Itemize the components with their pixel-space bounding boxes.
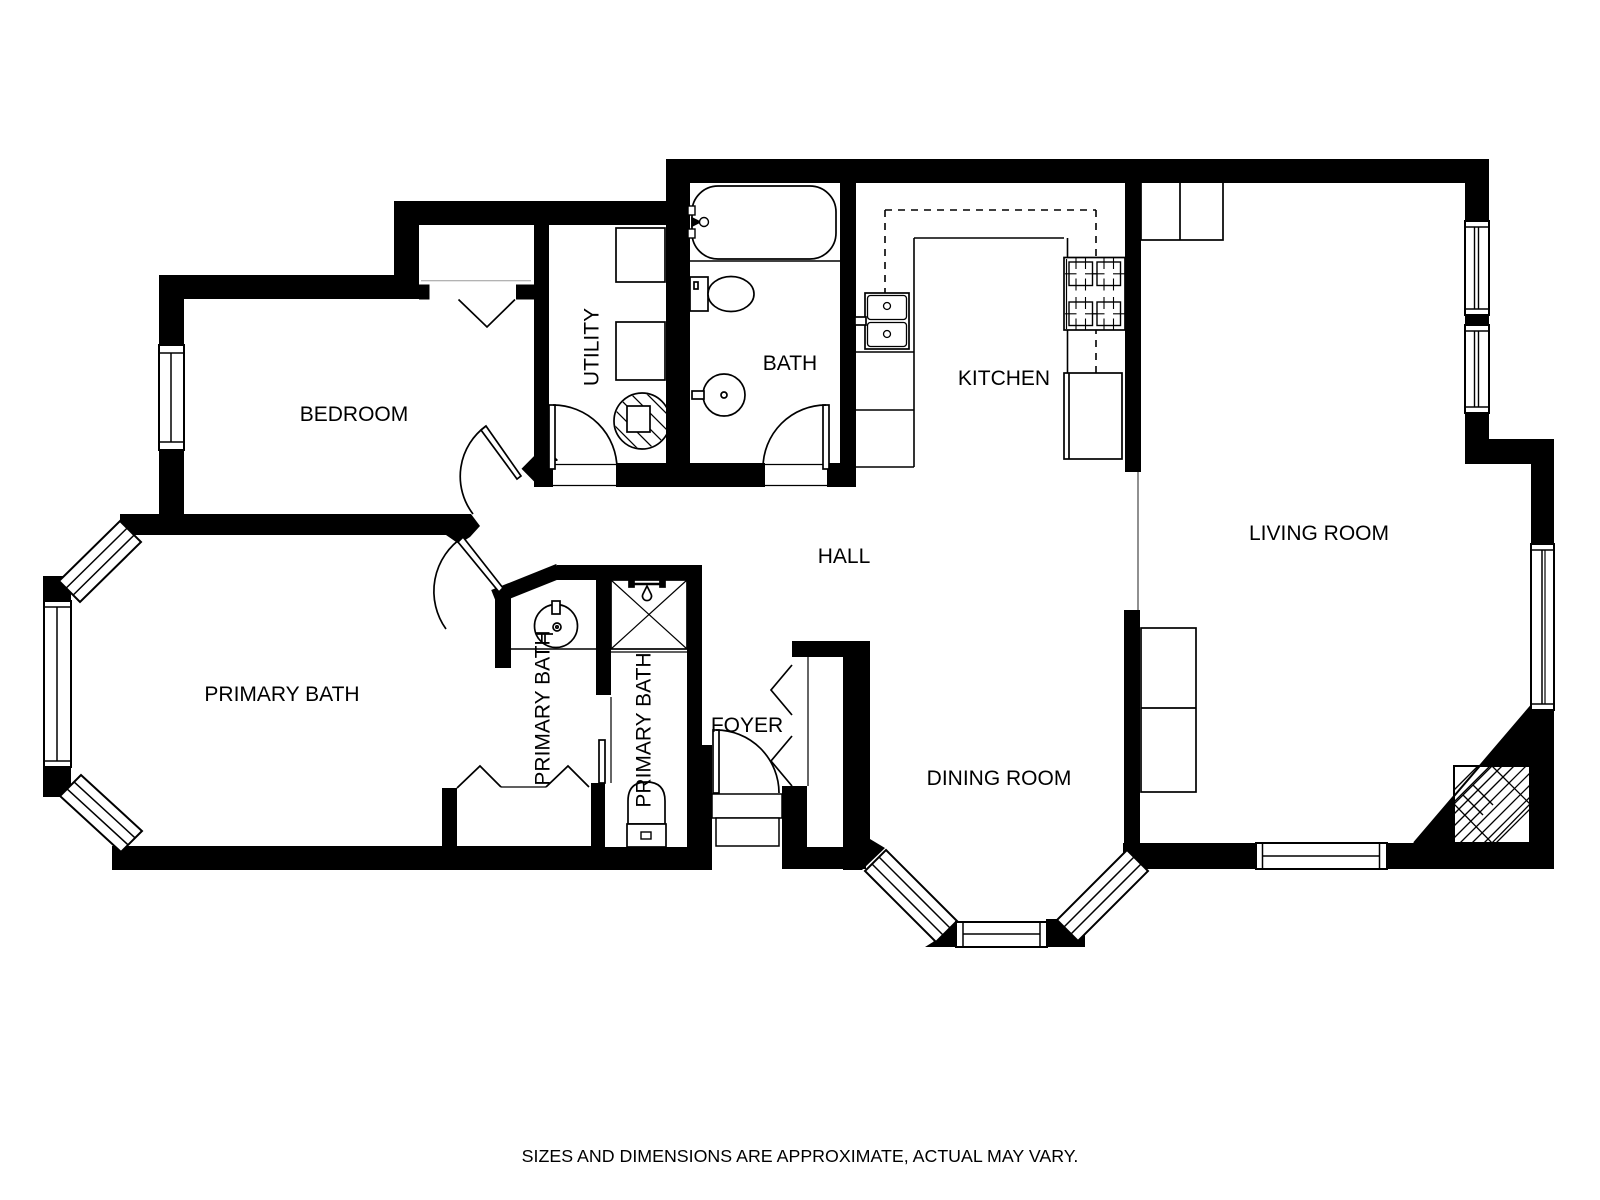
svg-text:SIZES AND DIMENSIONS ARE APPRO: SIZES AND DIMENSIONS ARE APPROXIMATE, AC…	[522, 1146, 1079, 1166]
svg-text:DINING ROOM: DINING ROOM	[927, 767, 1072, 790]
svg-text:PRIMARY BATH: PRIMARY BATH	[204, 683, 359, 706]
svg-text:LIVING ROOM: LIVING ROOM	[1249, 522, 1389, 545]
svg-text:FOYER: FOYER	[711, 714, 783, 737]
svg-text:BEDROOM: BEDROOM	[300, 403, 409, 426]
svg-text:PRIMARY BATH: PRIMARY BATH	[532, 630, 555, 785]
svg-text:UTILITY: UTILITY	[581, 308, 604, 386]
svg-text:HALL: HALL	[818, 545, 871, 568]
svg-text:KITCHEN: KITCHEN	[958, 367, 1050, 390]
svg-text:PRIMARY BATH: PRIMARY BATH	[633, 652, 656, 807]
svg-text:BATH: BATH	[763, 352, 817, 375]
